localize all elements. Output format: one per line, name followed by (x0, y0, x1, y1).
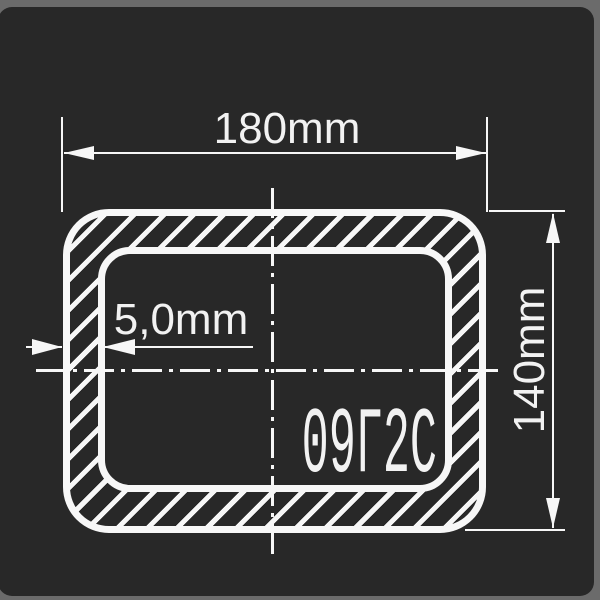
steel-grade-label: 09Г2С (293, 400, 437, 494)
width-arrowhead-left-icon (64, 146, 94, 160)
width-extension-line-left (61, 117, 63, 212)
width-extension-line-right (486, 117, 488, 212)
width-dimension-label: 180mm (107, 107, 467, 151)
height-dimension-label: 140mm (507, 200, 553, 520)
thickness-dimension-label: 5,0mm (104, 298, 258, 342)
drawing-canvas: 09Г2С 180mm 140mm 5,0mm (0, 0, 600, 600)
centerline-vertical (271, 188, 274, 560)
thickness-arrowhead-right-icon (32, 339, 62, 355)
height-extension-line-bottom (465, 529, 565, 531)
centerline-horizontal (36, 369, 504, 372)
